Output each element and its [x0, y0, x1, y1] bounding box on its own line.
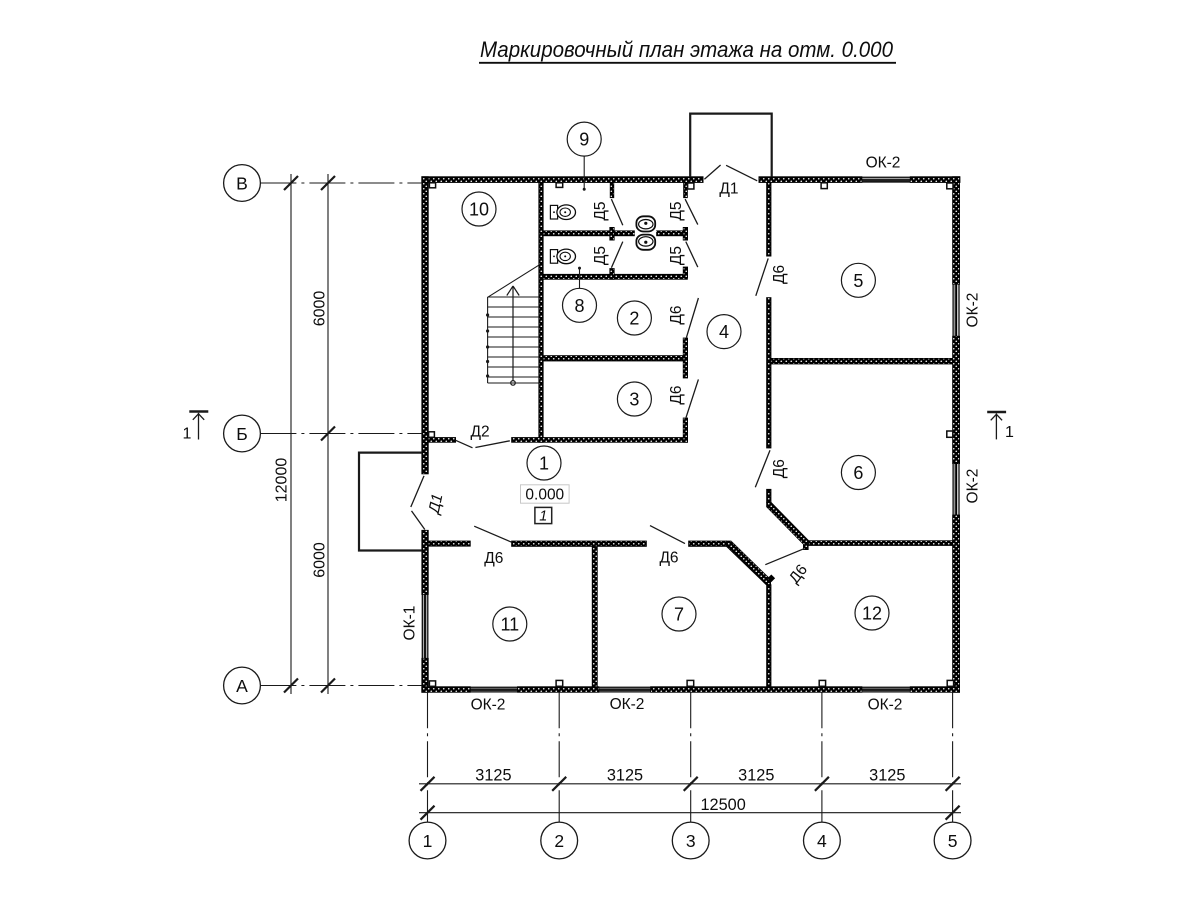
svg-text:Д2: Д2: [471, 423, 490, 440]
svg-text:Д5: Д5: [592, 201, 609, 220]
svg-text:Б: Б: [236, 424, 247, 444]
svg-text:1: 1: [539, 509, 547, 525]
svg-text:9: 9: [579, 130, 589, 150]
svg-text:Д6: Д6: [771, 265, 788, 284]
svg-text:Д5: Д5: [668, 201, 685, 220]
svg-text:1: 1: [423, 831, 433, 851]
svg-text:Д5: Д5: [668, 246, 685, 265]
svg-text:ОК-2: ОК-2: [471, 697, 506, 714]
svg-text:Д1: Д1: [719, 180, 738, 197]
svg-text:7: 7: [674, 605, 684, 625]
svg-text:ОК-2: ОК-2: [965, 293, 982, 328]
svg-text:Д6: Д6: [786, 561, 811, 587]
svg-text:3125: 3125: [869, 767, 905, 785]
svg-text:3125: 3125: [475, 767, 511, 785]
svg-text:5: 5: [853, 271, 863, 291]
svg-text:1: 1: [539, 454, 549, 474]
svg-text:3: 3: [629, 390, 639, 410]
svg-text:12000: 12000: [273, 458, 290, 503]
svg-text:4: 4: [817, 831, 827, 851]
svg-text:Д6: Д6: [668, 385, 685, 404]
svg-text:Д5: Д5: [592, 246, 609, 265]
svg-text:3125: 3125: [738, 767, 774, 785]
svg-text:8: 8: [574, 296, 584, 316]
svg-text:Д6: Д6: [659, 550, 678, 567]
svg-text:Д1: Д1: [425, 492, 446, 517]
svg-text:3: 3: [686, 831, 696, 851]
svg-text:ОК-2: ОК-2: [610, 696, 645, 713]
svg-text:В: В: [236, 173, 248, 193]
svg-text:6000: 6000: [311, 291, 328, 327]
svg-text:3125: 3125: [607, 767, 643, 785]
svg-text:Д6: Д6: [771, 459, 788, 478]
svg-text:ОК-2: ОК-2: [965, 469, 982, 504]
svg-text:10: 10: [469, 200, 489, 220]
svg-text:12500: 12500: [701, 796, 746, 814]
svg-text:А: А: [236, 676, 248, 696]
svg-text:0.000: 0.000: [525, 487, 564, 504]
svg-text:Д6: Д6: [484, 550, 503, 567]
svg-text:6: 6: [853, 463, 863, 483]
svg-text:11: 11: [500, 615, 519, 635]
svg-text:1: 1: [1005, 424, 1014, 441]
svg-text:ОК-1: ОК-1: [402, 606, 419, 641]
svg-text:2: 2: [554, 831, 564, 851]
svg-text:Д6: Д6: [668, 305, 685, 324]
svg-text:1: 1: [183, 426, 192, 443]
svg-text:4: 4: [719, 322, 729, 342]
svg-text:12: 12: [862, 604, 882, 624]
svg-text:ОК-2: ОК-2: [866, 155, 901, 172]
svg-text:5: 5: [948, 831, 958, 851]
svg-text:ОК-2: ОК-2: [868, 697, 903, 714]
svg-text:6000: 6000: [311, 542, 328, 578]
svg-text:2: 2: [629, 309, 639, 329]
svg-text:Маркировочный план этажа на от: Маркировочный план этажа на отм. 0.000: [480, 37, 894, 62]
